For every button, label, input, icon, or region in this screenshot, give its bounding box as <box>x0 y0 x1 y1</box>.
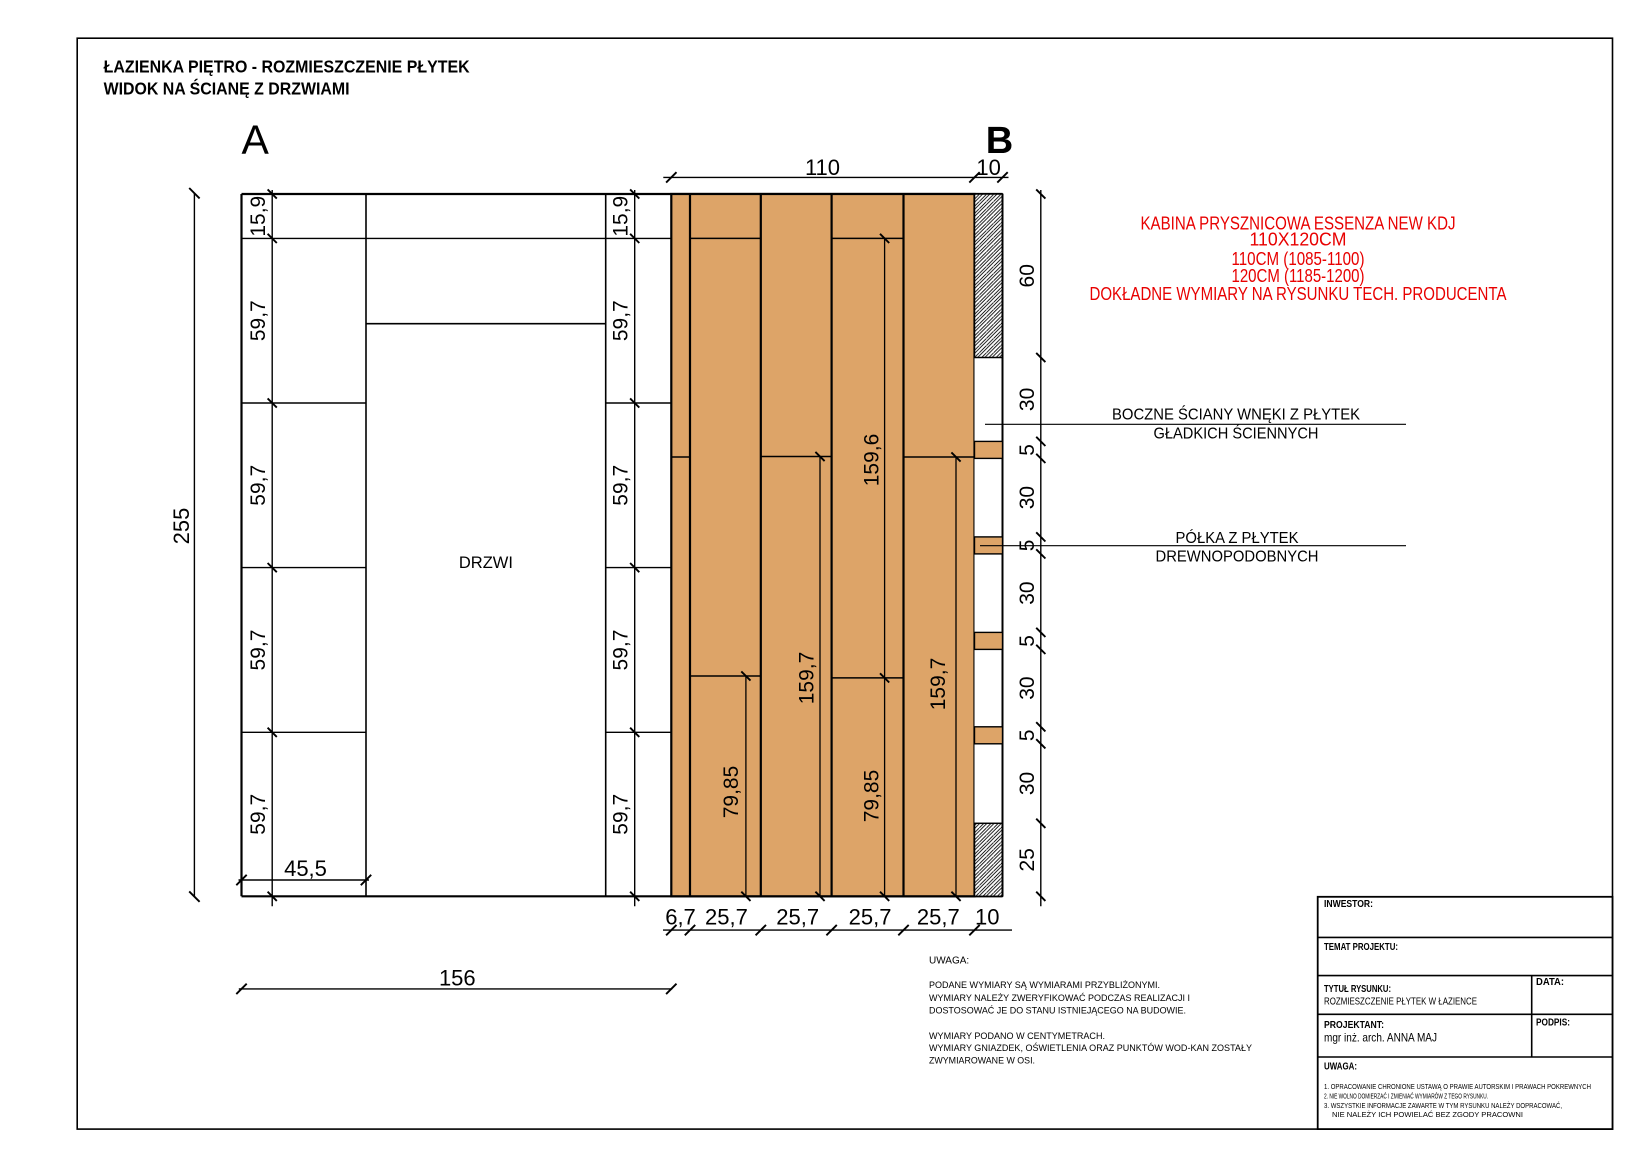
svg-text:DOKŁADNE WYMIARY NA RYSUNKU TE: DOKŁADNE WYMIARY NA RYSUNKU TECH. PRODUC… <box>1090 284 1507 304</box>
svg-text:10: 10 <box>976 155 1000 180</box>
svg-text:156: 156 <box>439 966 476 991</box>
svg-text:30: 30 <box>1016 486 1039 509</box>
svg-text:15,9: 15,9 <box>610 196 633 237</box>
svg-text:DOSTOSOWAĆ JE DO STANU ISTNIEJ: DOSTOSOWAĆ JE DO STANU ISTNIEJĄCEGO NA B… <box>929 1005 1186 1015</box>
svg-text:120CM (1185-1200): 120CM (1185-1200) <box>1232 266 1365 286</box>
svg-text:59,7: 59,7 <box>247 300 270 341</box>
svg-text:WYMIARY NALEŻY ZWERYFIKOWAĆ PO: WYMIARY NALEŻY ZWERYFIKOWAĆ PODCZAS REAL… <box>929 993 1190 1003</box>
svg-text:25,7: 25,7 <box>917 905 960 930</box>
svg-text:30: 30 <box>1016 676 1039 699</box>
svg-text:25,7: 25,7 <box>776 905 819 930</box>
svg-text:110X120CM: 110X120CM <box>1250 230 1347 250</box>
svg-text:2. NIE WOLNO DOMIERZAĆ I ZMIEN: 2. NIE WOLNO DOMIERZAĆ I ZMIENIAĆ WYMIAR… <box>1324 1092 1488 1101</box>
svg-text:59,7: 59,7 <box>610 794 633 835</box>
svg-text:ROZMIESZCZENIE PŁYTEK W ŁAZIEN: ROZMIESZCZENIE PŁYTEK W ŁAZIENCE <box>1324 997 1477 1008</box>
svg-text:15,9: 15,9 <box>247 196 270 237</box>
svg-text:110: 110 <box>805 155 840 180</box>
svg-text:WIDOK NA ŚCIANĘ Z DRZWIAMI: WIDOK NA ŚCIANĘ Z DRZWIAMI <box>104 77 350 98</box>
svg-text:59,7: 59,7 <box>247 630 270 671</box>
svg-text:3. WSZYSTKIE INFORMACJE ZAWART: 3. WSZYSTKIE INFORMACJE ZAWARTE W TYM RY… <box>1324 1101 1562 1110</box>
svg-text:59,7: 59,7 <box>247 465 270 506</box>
svg-text:5: 5 <box>1016 729 1039 741</box>
svg-text:1. OPRACOWANIE CHRONIONE USTAW: 1. OPRACOWANIE CHRONIONE USTAWĄ O PRAWIE… <box>1324 1082 1591 1091</box>
svg-text:10: 10 <box>975 905 999 930</box>
svg-text:GŁADKICH ŚCIENNYCH: GŁADKICH ŚCIENNYCH <box>1154 424 1319 443</box>
svg-text:TYTUŁ RYSUNKU:: TYTUŁ RYSUNKU: <box>1324 983 1391 995</box>
svg-text:5: 5 <box>1016 444 1039 456</box>
svg-text:DATA:: DATA: <box>1536 976 1564 988</box>
svg-text:PODANE WYMIARY SĄ WYMIARAMI PR: PODANE WYMIARY SĄ WYMIARAMI PRZYBLIŻONYM… <box>929 980 1160 990</box>
svg-text:ŁAZIENKA PIĘTRO - ROZMIESZCZEN: ŁAZIENKA PIĘTRO - ROZMIESZCZENIE PŁYTEK <box>104 57 470 77</box>
svg-text:59,7: 59,7 <box>610 630 633 671</box>
svg-text:PODPIS:: PODPIS: <box>1536 1017 1570 1029</box>
svg-text:30: 30 <box>1016 388 1039 411</box>
svg-text:A: A <box>242 117 270 163</box>
svg-text:WYMIARY GNIAZDEK, OŚWIETLENIA: WYMIARY GNIAZDEK, OŚWIETLENIA ORAZ PUNKT… <box>929 1042 1252 1053</box>
svg-text:159,7: 159,7 <box>927 658 950 711</box>
svg-text:59,7: 59,7 <box>247 794 270 835</box>
svg-text:WYMIARY PODANO W CENTYMETRACH.: WYMIARY PODANO W CENTYMETRACH. <box>929 1031 1105 1041</box>
svg-text:PROJEKTANT:: PROJEKTANT: <box>1324 1019 1384 1031</box>
svg-text:30: 30 <box>1016 581 1039 604</box>
svg-text:30: 30 <box>1016 772 1039 795</box>
svg-text:159,6: 159,6 <box>861 434 884 487</box>
svg-text:DRZWI: DRZWI <box>459 554 513 572</box>
svg-text:6,7: 6,7 <box>665 905 696 930</box>
svg-text:25,7: 25,7 <box>849 905 892 930</box>
svg-text:59,7: 59,7 <box>610 465 633 506</box>
svg-text:ZWYMIAROWANE W OSI.: ZWYMIAROWANE W OSI. <box>929 1056 1035 1066</box>
svg-text:UWAGA:: UWAGA: <box>929 955 969 966</box>
svg-text:TEMAT PROJEKTU:: TEMAT PROJEKTU: <box>1324 941 1398 953</box>
svg-text:25: 25 <box>1016 848 1039 871</box>
svg-text:5: 5 <box>1016 635 1039 647</box>
svg-text:59,7: 59,7 <box>610 300 633 341</box>
svg-text:79,85: 79,85 <box>861 770 884 823</box>
svg-text:INWESTOR:: INWESTOR: <box>1324 898 1373 910</box>
svg-text:BOCZNE ŚCIANY WNĘKI Z PŁYTEK: BOCZNE ŚCIANY WNĘKI Z PŁYTEK <box>1112 405 1360 424</box>
svg-text:mgr inż. arch. ANNA MAJ: mgr inż. arch. ANNA MAJ <box>1324 1031 1437 1045</box>
svg-text:60: 60 <box>1016 264 1039 287</box>
svg-text:DREWNOPODOBNYCH: DREWNOPODOBNYCH <box>1156 549 1319 566</box>
svg-text:NIE NALEŻY ICH POWIELAĆ BEZ ZG: NIE NALEŻY ICH POWIELAĆ BEZ ZGODY PRACOW… <box>1332 1110 1523 1119</box>
svg-text:255: 255 <box>169 508 194 545</box>
svg-text:45,5: 45,5 <box>284 856 327 881</box>
svg-text:UWAGA:: UWAGA: <box>1324 1061 1357 1073</box>
svg-text:79,85: 79,85 <box>720 766 743 819</box>
svg-text:PÓŁKA Z PŁYTEK: PÓŁKA Z PŁYTEK <box>1176 528 1299 547</box>
svg-text:159,7: 159,7 <box>796 652 819 705</box>
svg-text:25,7: 25,7 <box>705 905 748 930</box>
